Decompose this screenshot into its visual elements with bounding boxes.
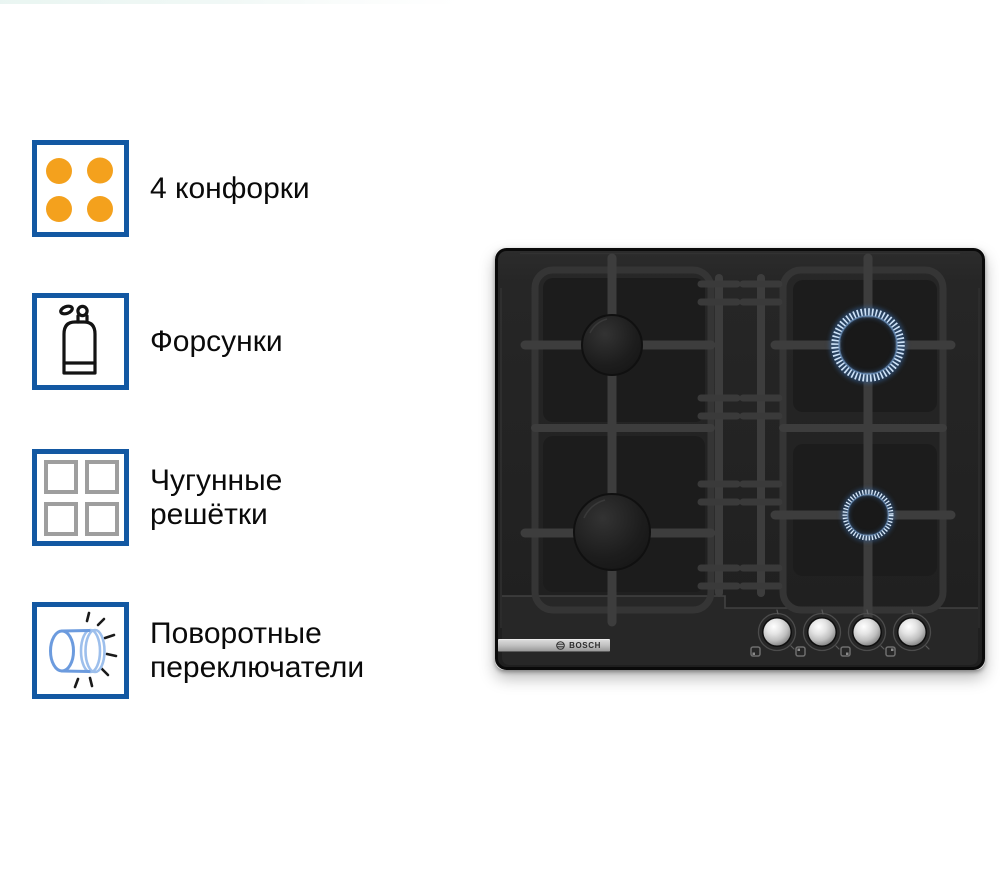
feature-row-burners: 4 конфорки <box>32 140 310 237</box>
flame-ring-top-right <box>835 312 901 378</box>
feature-row-nozzles: Форсунки <box>32 293 283 390</box>
burner-cap-bottom-left <box>574 494 650 570</box>
four-burners-icon <box>37 145 124 232</box>
top-edge-artifact <box>0 0 460 4</box>
feature-label-grates: Чугунные решётки <box>150 464 390 532</box>
product-feature-page: 4 конфорки Форсунки Чугунные решёт <box>0 0 1000 870</box>
bosch-logo-icon <box>556 641 565 650</box>
flame-ring-bottom-right <box>845 492 891 538</box>
rotary-knob-icon <box>37 607 124 694</box>
feature-label-burners: 4 конфорки <box>150 172 310 206</box>
gas-hob-graphic <box>495 248 985 670</box>
feature-row-grates: Чугунные решётки <box>32 449 390 546</box>
four-burners-icon-box <box>32 140 129 237</box>
feature-label-nozzles: Форсунки <box>150 325 283 359</box>
burner-cap-top-left <box>582 315 642 375</box>
gas-cylinder-icon-box <box>32 293 129 390</box>
bosch-logo-text: BOSCH <box>569 642 601 650</box>
product-image-gas-hob: BOSCH <box>495 248 985 670</box>
gas-cylinder-icon <box>37 298 124 385</box>
feature-label-rotary-switches: Поворотные переключатели <box>150 617 390 685</box>
cast-iron-grates-icon <box>37 454 124 541</box>
bosch-logo-strip: BOSCH <box>498 639 610 652</box>
rotary-knob-icon-box <box>32 602 129 699</box>
feature-row-rotary-switches: Поворотные переключатели <box>32 602 390 699</box>
cast-iron-grates-icon-box <box>32 449 129 546</box>
